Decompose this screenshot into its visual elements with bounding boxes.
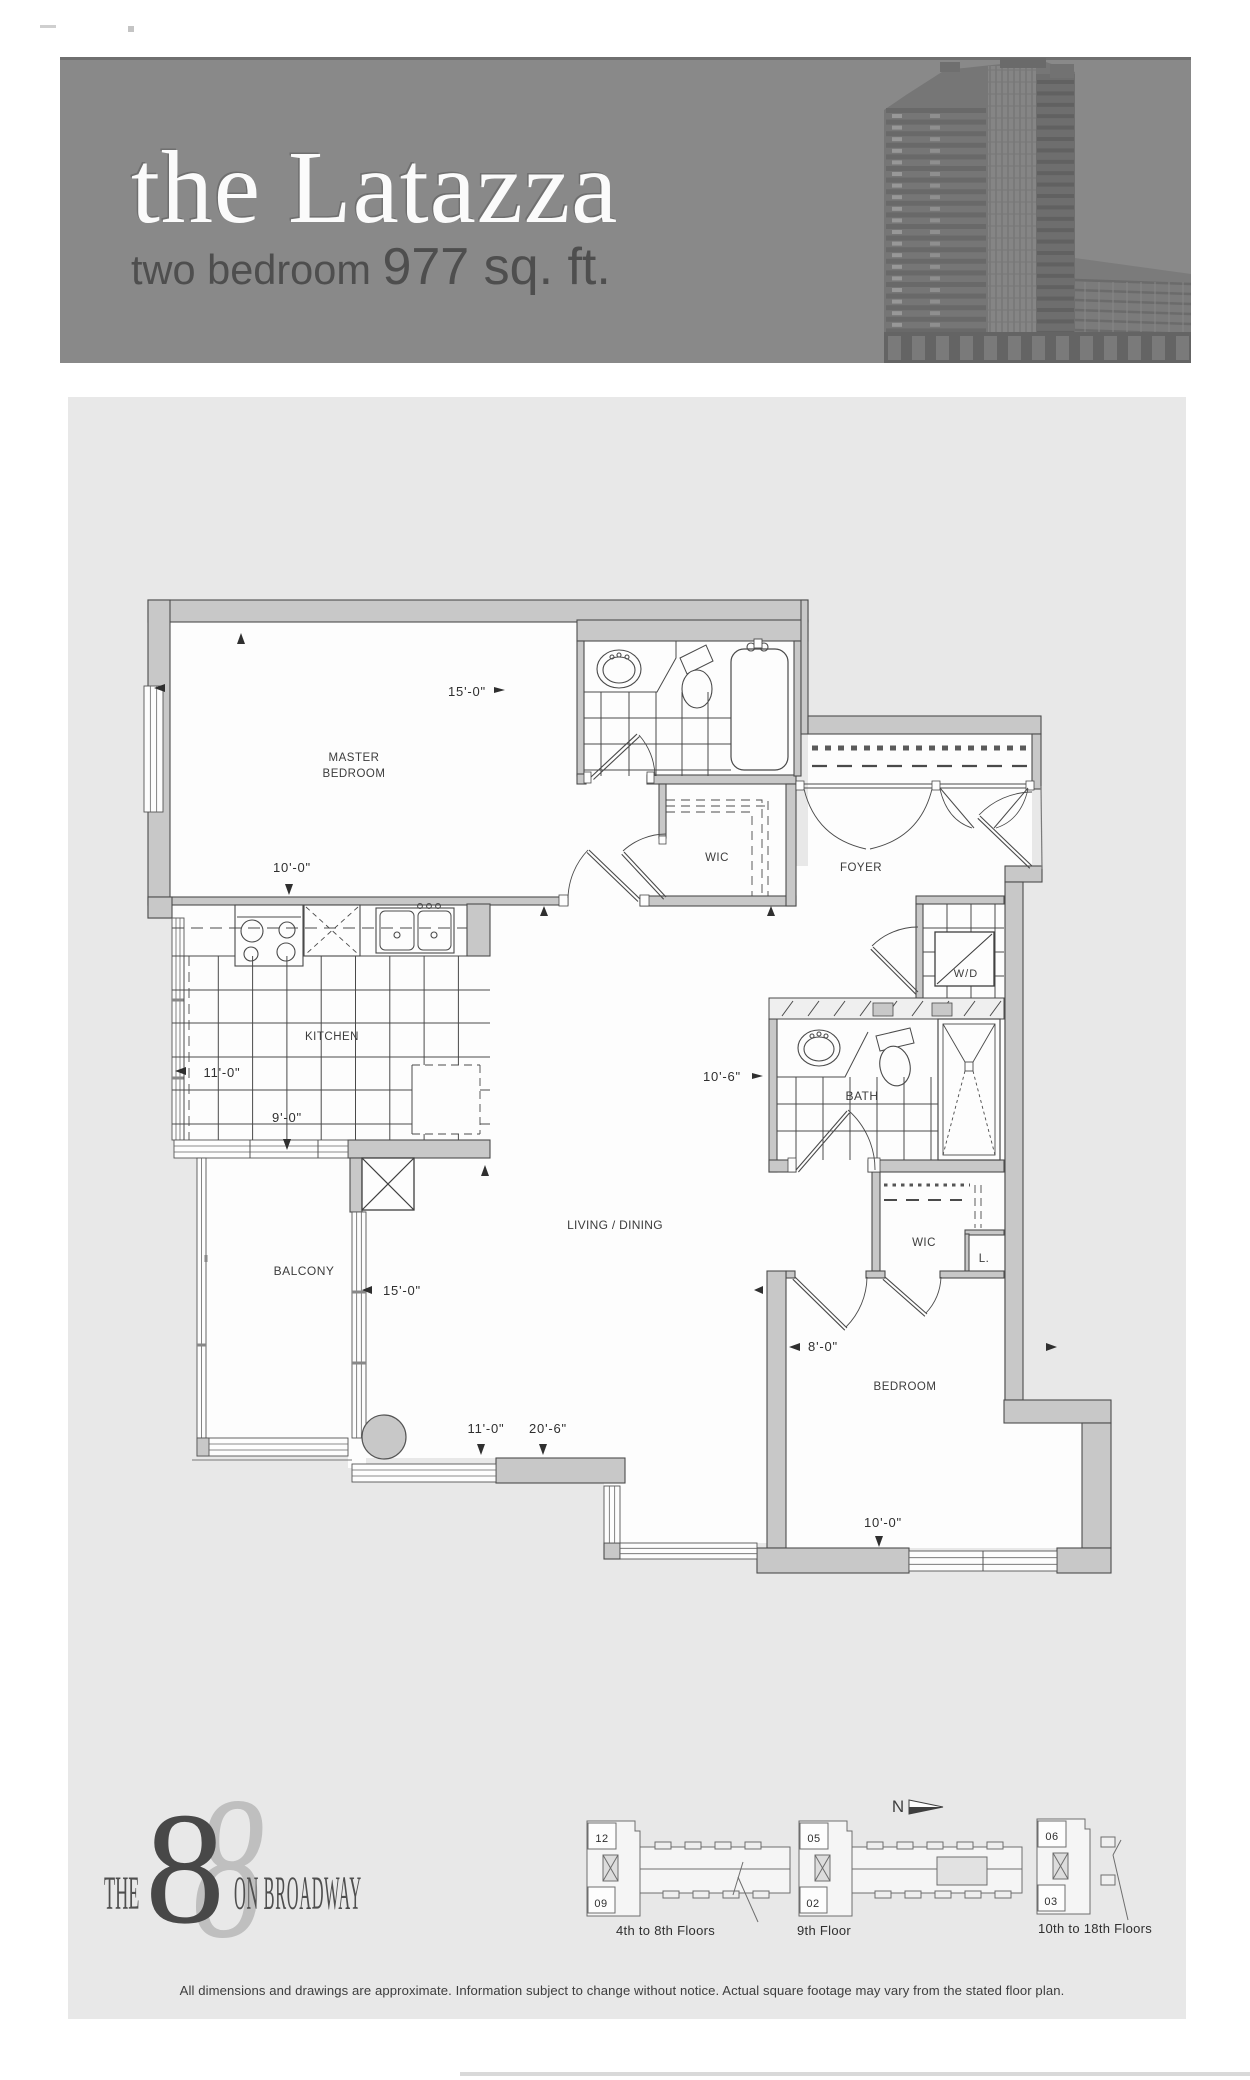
svg-text:9th Floor: 9th Floor	[797, 1923, 851, 1938]
svg-text:8'-0": 8'-0"	[808, 1339, 838, 1354]
svg-text:THE: THE	[104, 1867, 139, 1920]
svg-text:9'-0": 9'-0"	[272, 1110, 302, 1125]
svg-text:4th to 8th Floors: 4th to 8th Floors	[616, 1923, 715, 1938]
svg-text:11'-0": 11'-0"	[468, 1421, 505, 1436]
svg-text:two bedroom 977 sq. ft.: two bedroom 977 sq. ft.	[131, 238, 611, 296]
svg-text:09: 09	[594, 1898, 607, 1910]
svg-text:W/D: W/D	[954, 968, 978, 980]
svg-text:12: 12	[595, 1833, 608, 1845]
svg-text:03: 03	[1044, 1896, 1057, 1908]
svg-text:02: 02	[806, 1898, 819, 1910]
svg-text:FOYER: FOYER	[840, 862, 882, 874]
svg-text:All dimensions and drawings ar: All dimensions and drawings are approxim…	[180, 1983, 1065, 1998]
svg-text:06: 06	[1045, 1831, 1058, 1843]
svg-text:10'-6": 10'-6"	[703, 1069, 741, 1084]
svg-text:BEDROOM: BEDROOM	[323, 768, 386, 780]
svg-text:ON BROADWAY: ON BROADWAY	[234, 1866, 362, 1920]
svg-text:BALCONY: BALCONY	[274, 1264, 335, 1278]
svg-text:MASTER: MASTER	[329, 752, 380, 764]
svg-text:15'-0": 15'-0"	[383, 1283, 421, 1298]
svg-text:20'-6": 20'-6"	[529, 1421, 567, 1436]
svg-text:N: N	[892, 1797, 904, 1816]
svg-text:BATH: BATH	[845, 1089, 878, 1103]
svg-text:15'-0": 15'-0"	[448, 684, 486, 699]
svg-text:10'-0": 10'-0"	[273, 860, 311, 875]
svg-text:05: 05	[807, 1833, 820, 1845]
svg-text:LIVING / DINING: LIVING / DINING	[567, 1218, 663, 1232]
svg-text:8: 8	[145, 1779, 225, 1957]
svg-text:WIC: WIC	[705, 852, 729, 864]
svg-text:WIC: WIC	[912, 1237, 936, 1249]
svg-text:KITCHEN: KITCHEN	[305, 1031, 359, 1043]
svg-text:L.: L.	[979, 1253, 990, 1265]
svg-text:11'-0": 11'-0"	[204, 1065, 241, 1080]
svg-text:the Latazza: the Latazza	[131, 130, 618, 245]
svg-text:BEDROOM: BEDROOM	[874, 1381, 937, 1393]
svg-text:10th to 18th Floors: 10th to 18th Floors	[1038, 1921, 1152, 1936]
svg-text:10'-0": 10'-0"	[864, 1515, 902, 1530]
